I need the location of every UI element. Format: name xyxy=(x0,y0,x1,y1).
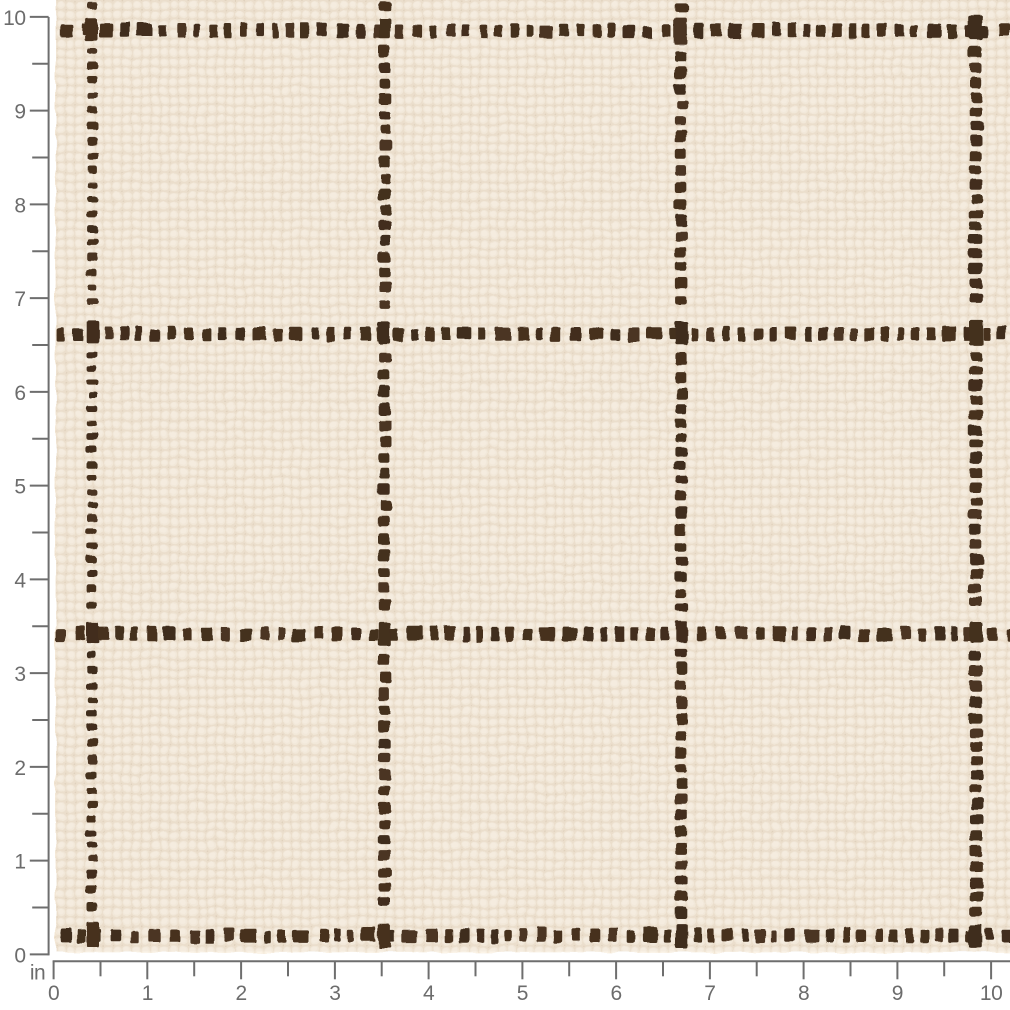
svg-text:9: 9 xyxy=(14,101,25,124)
svg-text:2: 2 xyxy=(236,982,247,1005)
svg-text:7: 7 xyxy=(14,288,25,311)
svg-text:6: 6 xyxy=(14,382,25,405)
svg-text:4: 4 xyxy=(14,569,26,592)
svg-text:9: 9 xyxy=(892,982,903,1005)
svg-text:7: 7 xyxy=(704,982,715,1005)
svg-text:6: 6 xyxy=(611,982,622,1005)
svg-text:0: 0 xyxy=(48,982,59,1005)
svg-text:1: 1 xyxy=(14,851,25,874)
svg-text:10: 10 xyxy=(3,7,25,30)
svg-text:4: 4 xyxy=(423,982,435,1005)
svg-text:3: 3 xyxy=(329,982,340,1005)
svg-text:0: 0 xyxy=(14,944,25,967)
svg-text:10: 10 xyxy=(980,982,1002,1005)
svg-text:5: 5 xyxy=(14,476,25,499)
svg-text:8: 8 xyxy=(798,982,809,1005)
svg-text:5: 5 xyxy=(517,982,528,1005)
svg-text:1: 1 xyxy=(142,982,153,1005)
svg-text:in: in xyxy=(30,962,45,985)
svg-text:3: 3 xyxy=(14,663,25,686)
svg-text:8: 8 xyxy=(14,194,25,217)
svg-text:2: 2 xyxy=(14,757,25,780)
